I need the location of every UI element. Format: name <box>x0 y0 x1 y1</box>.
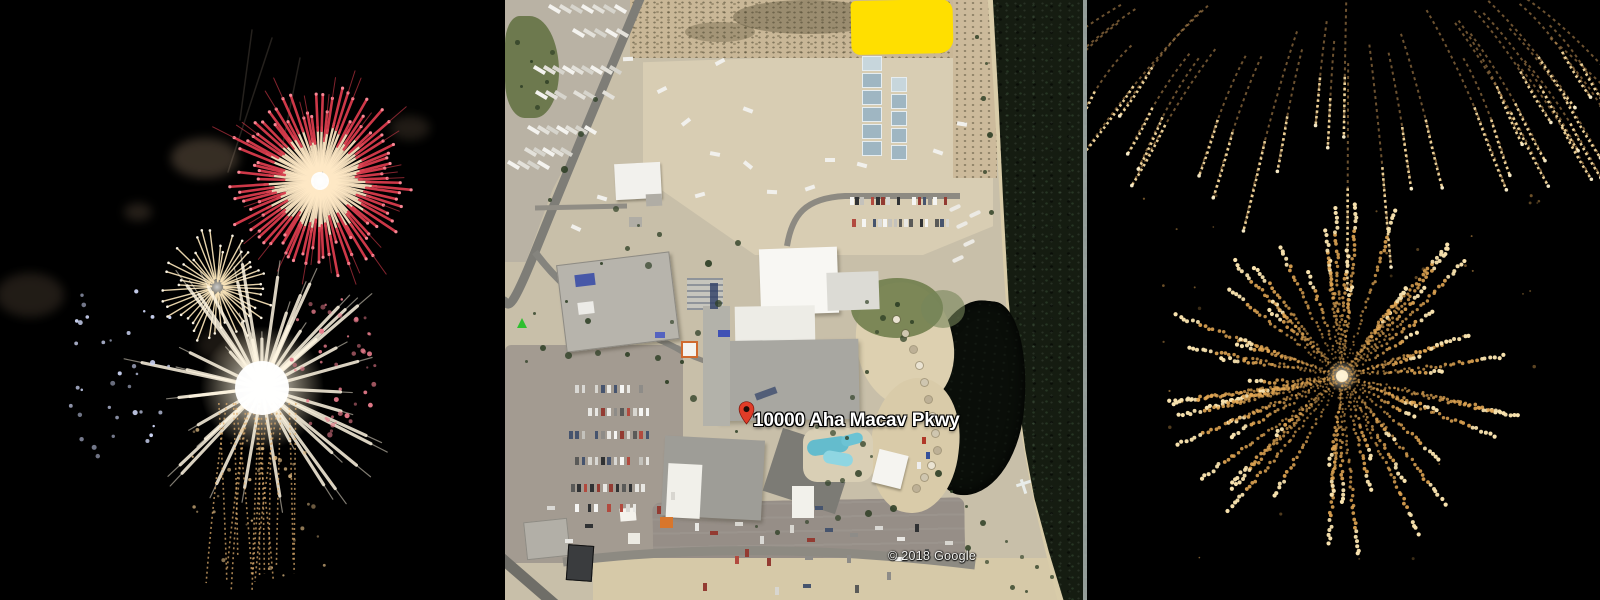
casino-section-west-wing <box>703 306 730 426</box>
parked-car <box>940 219 944 227</box>
tree-icon-marker <box>517 318 527 328</box>
parked-car <box>633 408 637 416</box>
parked-car <box>646 408 650 416</box>
triptych-collage: 10000 Aha Macav Pkwy © 2018 Google <box>0 0 1600 600</box>
parked-car <box>803 584 811 588</box>
parked-car <box>629 484 633 492</box>
parked-car <box>633 431 637 439</box>
parked-car <box>852 219 856 227</box>
parked-car <box>582 385 586 393</box>
parked-car <box>860 197 864 205</box>
parked-car <box>607 431 611 439</box>
storage-unit <box>891 145 907 160</box>
parked-car <box>614 385 618 393</box>
tree <box>935 470 942 477</box>
parked-car <box>620 504 624 512</box>
parked-car <box>584 484 588 492</box>
fireworks-photo-right <box>1087 0 1600 600</box>
parked-car <box>641 484 645 492</box>
parked-car <box>635 484 639 492</box>
tree <box>655 355 661 361</box>
parked-car <box>607 504 611 512</box>
parked-car <box>620 431 624 439</box>
parked-car <box>899 219 903 227</box>
parked-car <box>946 219 950 227</box>
tree <box>985 560 989 564</box>
beach-umbrella <box>902 330 909 337</box>
beach-umbrella <box>928 462 935 469</box>
burst-dotfield <box>69 289 172 458</box>
parked-car <box>627 457 631 465</box>
parked-car <box>616 484 620 492</box>
blue-canopy <box>655 332 665 338</box>
parked-car <box>850 197 854 205</box>
tree <box>690 395 697 402</box>
parked-car <box>607 408 611 416</box>
casino-section-white-small <box>792 486 814 518</box>
storage-unit <box>891 111 907 126</box>
parked-car <box>594 504 598 512</box>
parked-car <box>622 484 626 492</box>
office-roof-sign <box>574 273 595 287</box>
parked-car <box>883 219 887 227</box>
parked-car <box>607 385 611 393</box>
parked-car <box>807 538 815 542</box>
tree <box>515 40 520 45</box>
parked-car <box>595 385 599 393</box>
road <box>505 556 559 600</box>
parked-car <box>888 219 892 227</box>
burst-coreburst <box>124 246 387 592</box>
parked-car <box>601 431 605 439</box>
parked-car <box>875 526 883 530</box>
parked-car <box>710 531 718 535</box>
parked-car <box>601 385 605 393</box>
parked-car <box>944 197 948 205</box>
parked-car <box>915 524 919 532</box>
parked-car <box>620 457 624 465</box>
parked-car <box>775 587 779 595</box>
building-small-gray <box>629 217 642 227</box>
tree <box>705 260 712 267</box>
tree <box>613 206 619 212</box>
parked-car <box>627 431 631 439</box>
parked-car <box>871 197 875 205</box>
tree <box>981 96 986 101</box>
parked-car <box>582 457 586 465</box>
tree <box>895 302 900 307</box>
parked-car <box>735 556 739 564</box>
fireworks-left-image <box>0 0 505 600</box>
white-canopy <box>628 533 640 544</box>
parked-car <box>923 197 927 205</box>
tree <box>550 50 555 55</box>
parked-car <box>627 385 631 393</box>
tree <box>1050 575 1054 579</box>
tree <box>561 166 568 173</box>
beach-umbrella <box>913 485 920 492</box>
beach-umbrella <box>916 362 923 369</box>
parked-car <box>588 504 592 512</box>
storage-unit <box>862 90 882 105</box>
parked-rv <box>767 190 777 195</box>
parked-car <box>597 484 601 492</box>
storage-unit <box>862 141 882 156</box>
helipad <box>681 341 698 358</box>
parked-rv <box>825 158 835 162</box>
parked-car <box>585 524 593 528</box>
parked-car <box>639 385 643 393</box>
highlight-area <box>850 0 953 55</box>
parked-rv <box>623 57 633 62</box>
parked-car <box>565 539 573 543</box>
parked-car <box>876 197 880 205</box>
parked-car <box>595 457 599 465</box>
parked-car <box>633 504 637 512</box>
storage-unit <box>891 77 907 92</box>
tree <box>775 530 780 535</box>
beach-umbrella <box>893 316 900 323</box>
parked-car <box>945 541 953 545</box>
building-small-gray <box>646 194 663 207</box>
tree <box>845 436 849 440</box>
parked-car <box>575 504 579 512</box>
parked-car <box>897 537 905 541</box>
fireworks-scene <box>1087 0 1600 560</box>
parked-car <box>601 408 605 416</box>
parked-car <box>847 555 851 563</box>
map-terrain <box>505 0 1087 600</box>
parked-car <box>933 197 937 205</box>
tree <box>850 395 855 400</box>
bus <box>566 544 594 582</box>
parked-car <box>575 385 579 393</box>
tree <box>825 480 831 486</box>
parked-car <box>614 408 618 416</box>
parked-car <box>614 457 618 465</box>
parked-car <box>614 431 618 439</box>
parked-car <box>805 556 813 560</box>
tree <box>1020 555 1024 559</box>
orange-canopy <box>660 517 673 528</box>
parked-car <box>922 437 926 444</box>
storage-unit <box>862 107 882 122</box>
beach-umbrella <box>925 396 932 403</box>
parked-car <box>909 219 913 227</box>
storage-unit <box>862 56 882 71</box>
tree <box>860 441 866 447</box>
parked-car <box>575 457 579 465</box>
parked-car <box>881 197 885 205</box>
parked-car <box>547 506 555 510</box>
parked-car <box>855 585 859 593</box>
parked-car <box>575 431 579 439</box>
map-edge <box>1083 0 1087 600</box>
parked-car <box>735 522 743 526</box>
parked-car <box>639 457 643 465</box>
map-attribution: © 2018 Google <box>888 549 976 563</box>
tree <box>840 478 845 483</box>
tree <box>890 505 897 512</box>
beach-umbrella <box>934 447 941 454</box>
casino-section-ridged-east <box>826 271 879 311</box>
parked-car <box>620 408 624 416</box>
parked-car <box>657 506 661 514</box>
parked-car <box>601 457 605 465</box>
fireworks-scene <box>0 30 430 592</box>
tree <box>695 330 701 336</box>
parked-car <box>815 506 823 510</box>
tree <box>540 345 546 351</box>
tree <box>715 300 722 307</box>
parked-car <box>850 533 858 537</box>
parked-car <box>897 197 901 205</box>
tree <box>670 320 674 324</box>
vegetation-patch <box>921 290 965 328</box>
parked-car <box>926 452 930 459</box>
parked-car <box>703 583 707 591</box>
parked-car <box>920 219 924 227</box>
parked-car <box>878 219 882 227</box>
parked-car <box>626 504 630 512</box>
storage-unit <box>891 94 907 109</box>
parked-car <box>745 549 749 557</box>
parked-car <box>609 484 613 492</box>
parked-car <box>925 219 929 227</box>
address-label: 10000 Aha Macav Pkwy <box>753 410 960 432</box>
parked-car <box>873 219 877 227</box>
blue-canopy <box>718 330 730 337</box>
casino-section-white-southwest <box>666 463 703 519</box>
burst-granular <box>1143 194 1540 560</box>
parked-car <box>588 408 592 416</box>
tree <box>657 232 662 237</box>
parked-car <box>935 219 939 227</box>
parked-car <box>695 523 699 531</box>
parked-car <box>862 219 866 227</box>
parked-car <box>912 197 916 205</box>
parked-car <box>646 457 650 465</box>
parked-car <box>627 408 631 416</box>
parked-car <box>767 558 771 566</box>
parked-car <box>790 525 794 533</box>
parked-car <box>577 484 581 492</box>
parked-car <box>904 219 908 227</box>
tree <box>645 262 652 269</box>
fireworks-photo-left <box>0 0 505 600</box>
parked-car <box>639 408 643 416</box>
parked-car <box>646 431 650 439</box>
storage-unit <box>862 124 882 139</box>
parked-car <box>639 431 643 439</box>
parked-car <box>917 462 921 469</box>
parked-car <box>928 197 932 205</box>
parked-car <box>571 484 575 492</box>
building-small-gray <box>523 518 571 560</box>
parked-car <box>607 457 611 465</box>
parked-car <box>760 536 764 544</box>
fireworks-right-image <box>1087 0 1600 600</box>
satellite-map: 10000 Aha Macav Pkwy © 2018 Google <box>505 0 1087 600</box>
parked-car <box>569 431 573 439</box>
storage-unit <box>891 128 907 143</box>
office-roof-unit <box>577 301 594 315</box>
tree <box>625 246 630 251</box>
tree <box>548 198 552 202</box>
parked-car <box>671 492 675 500</box>
parked-car <box>894 219 898 227</box>
parked-car <box>825 528 833 532</box>
parked-car <box>588 457 592 465</box>
parked-car <box>603 484 607 492</box>
tree <box>865 510 872 517</box>
tree <box>680 360 684 364</box>
tree <box>975 35 979 39</box>
parked-car <box>855 197 859 205</box>
beach-umbrella <box>910 346 917 353</box>
parked-car <box>595 431 599 439</box>
parked-car <box>886 197 890 205</box>
falling-trails <box>1087 0 1600 291</box>
parked-car <box>582 431 586 439</box>
tree <box>565 352 572 359</box>
tree <box>855 470 862 477</box>
tree <box>1010 585 1015 590</box>
parked-car <box>620 385 624 393</box>
parked-car <box>887 572 891 580</box>
parked-car <box>590 484 594 492</box>
parked-car <box>918 197 922 205</box>
storage-unit <box>862 73 882 88</box>
beach-umbrella <box>921 379 928 386</box>
parked-car <box>595 408 599 416</box>
beach-umbrella <box>921 474 928 481</box>
